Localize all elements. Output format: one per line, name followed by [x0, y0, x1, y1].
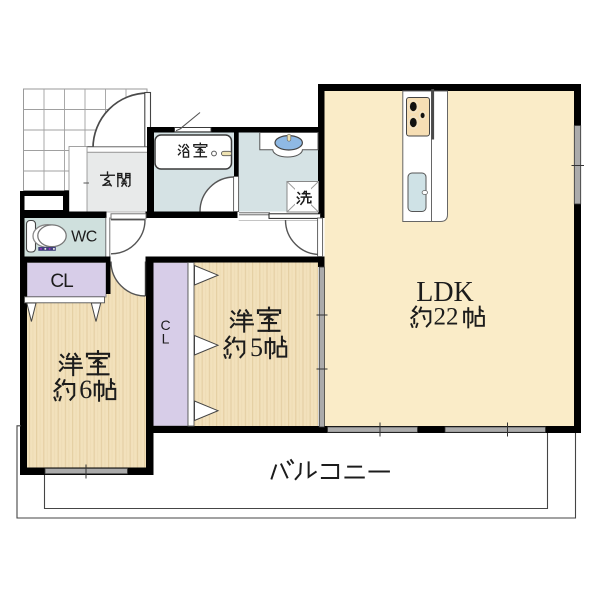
svg-text:WC: WC	[71, 229, 97, 246]
svg-text:22: 22	[434, 304, 459, 331]
svg-text:L: L	[162, 331, 170, 347]
svg-text:5: 5	[250, 333, 263, 362]
svg-text:CL: CL	[50, 271, 73, 292]
svg-text:6: 6	[79, 375, 92, 404]
